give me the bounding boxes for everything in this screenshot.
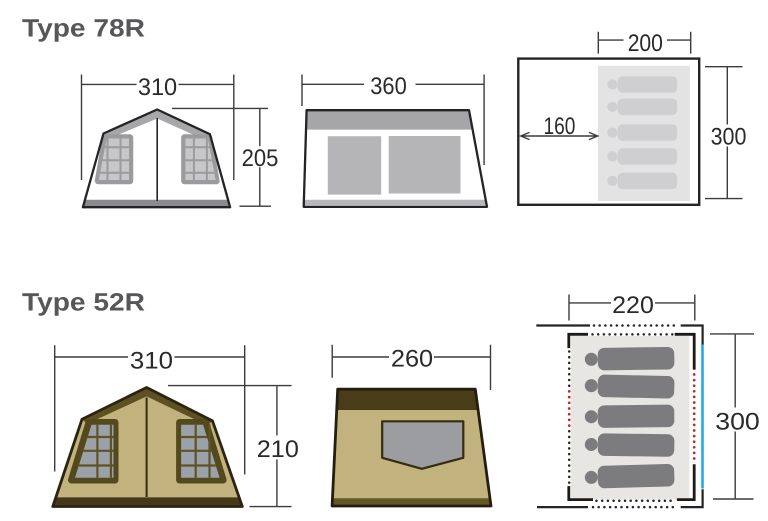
svg-text:310: 310 (138, 74, 177, 101)
svg-text:Type 78R: Type 78R (22, 15, 145, 43)
svg-text:160: 160 (544, 113, 576, 140)
svg-text:Type 52R: Type 52R (22, 289, 145, 317)
svg-text:360: 360 (370, 73, 407, 100)
svg-text:200: 200 (628, 30, 663, 57)
svg-text:205: 205 (242, 145, 279, 172)
svg-text:220: 220 (612, 292, 654, 319)
svg-text:300: 300 (711, 124, 747, 151)
svg-text:300: 300 (715, 408, 760, 435)
svg-text:310: 310 (130, 347, 173, 374)
svg-text:260: 260 (391, 345, 433, 372)
svg-text:210: 210 (257, 436, 299, 463)
